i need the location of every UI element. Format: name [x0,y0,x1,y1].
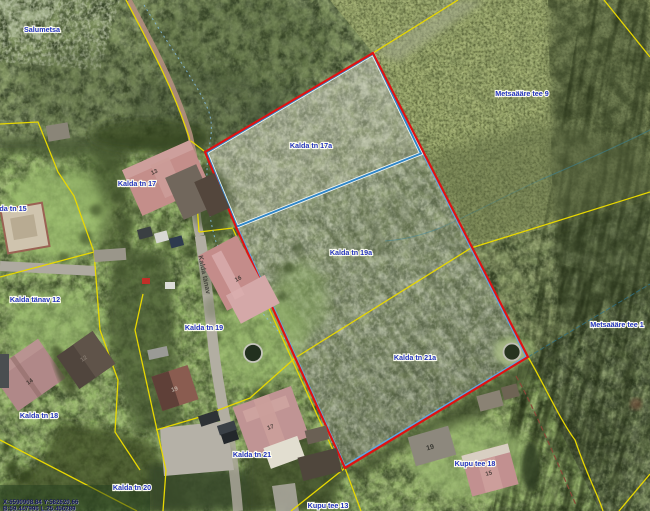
svg-text:Kalda tn 19a: Kalda tn 19a [330,248,373,257]
svg-text:Kalda tn 21a: Kalda tn 21a [394,353,437,362]
svg-text:alda tn 15: alda tn 15 [0,204,27,213]
svg-text:Kupu tee 13: Kupu tee 13 [308,501,349,510]
svg-text:Kalda tn 20: Kalda tn 20 [113,483,151,492]
svg-text:B:59.447996 L:25.456289: B:59.447996 L:25.456289 [3,506,76,511]
svg-text:Kalda tn 18: Kalda tn 18 [20,411,58,420]
svg-text:Salumetsa: Salumetsa [24,25,61,34]
svg-text:Kupu tee 18: Kupu tee 18 [455,459,496,468]
svg-text:Kalda tn 17: Kalda tn 17 [118,179,156,188]
svg-text:Kalda tn 17a: Kalda tn 17a [290,141,333,150]
svg-text:Metsaääre tee 9: Metsaääre tee 9 [495,89,549,98]
svg-text:Kalda tn 19: Kalda tn 19 [185,323,223,332]
svg-text:Kalda tn 21: Kalda tn 21 [233,450,271,459]
svg-text:Metsaääre tee 1: Metsaääre tee 1 [590,320,644,329]
svg-text:Kalda tänav 12: Kalda tänav 12 [10,295,60,304]
